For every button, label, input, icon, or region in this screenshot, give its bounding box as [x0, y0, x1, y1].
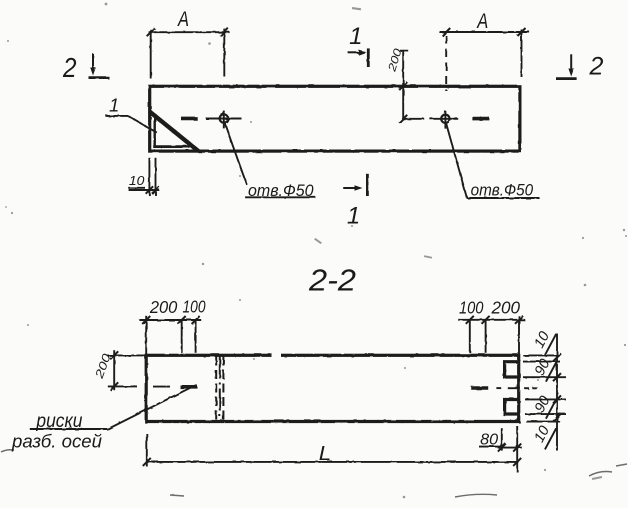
svg-text:200: 200 [149, 297, 178, 317]
svg-text:отв.Ф50: отв.Ф50 [248, 182, 314, 200]
svg-text:отв.Ф50: отв.Ф50 [471, 181, 534, 199]
svg-text:1: 1 [349, 23, 362, 50]
svg-text:2-2: 2-2 [308, 263, 356, 298]
svg-text:A: A [476, 10, 489, 33]
svg-text:200: 200 [491, 298, 521, 318]
svg-text:100: 100 [183, 297, 206, 317]
svg-text:80: 80 [480, 432, 498, 449]
svg-text:10: 10 [129, 174, 145, 188]
svg-text:100: 100 [459, 297, 484, 317]
svg-text:разб. осей: разб. осей [11, 432, 102, 452]
svg-text:2: 2 [62, 52, 77, 83]
svg-text:1: 1 [109, 95, 119, 116]
svg-text:1: 1 [347, 203, 360, 230]
svg-text:L: L [319, 443, 332, 465]
svg-text:2: 2 [588, 53, 603, 81]
svg-text:риски: риски [35, 411, 82, 432]
svg-text:A: A [176, 8, 189, 31]
